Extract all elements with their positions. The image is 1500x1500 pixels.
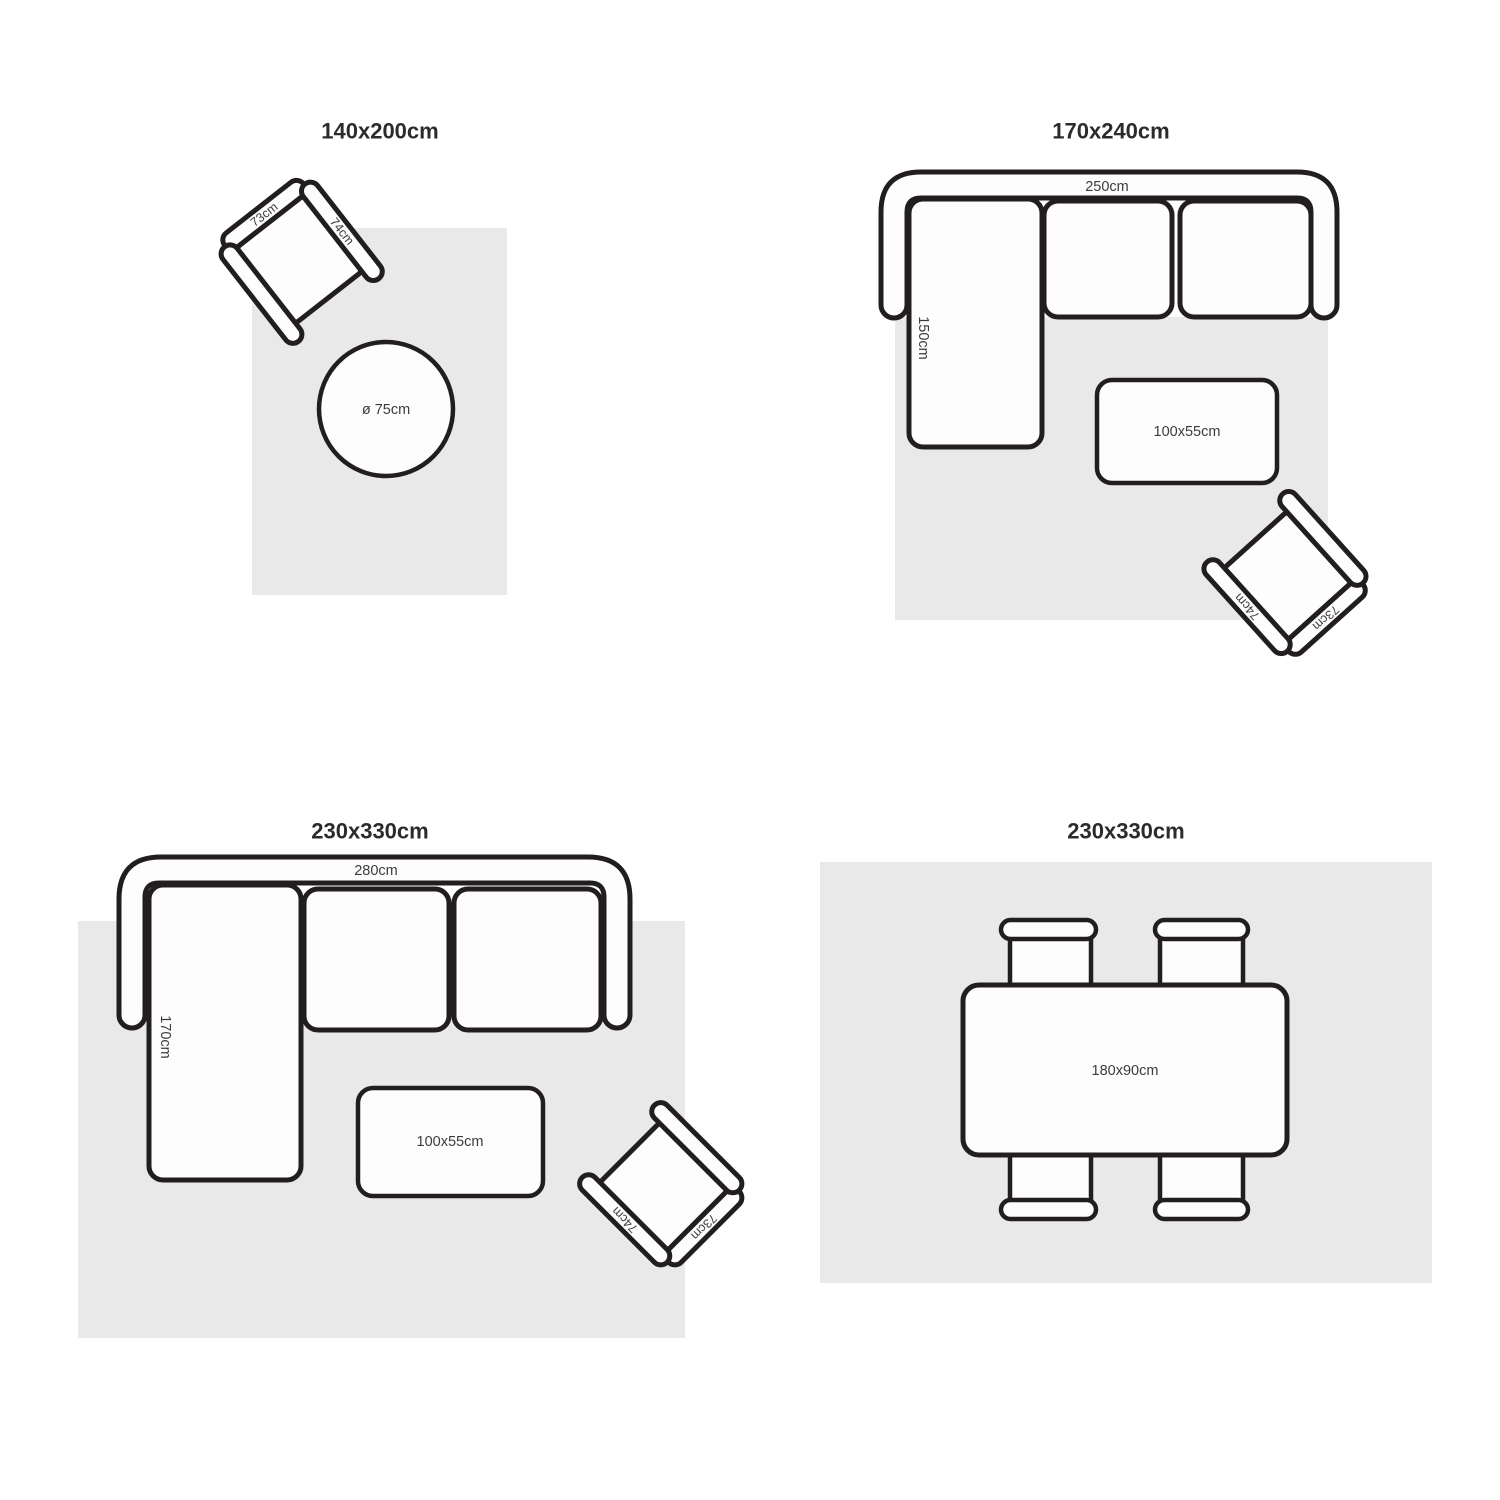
sofa-cushion [454,889,601,1030]
dining-chair-backrest [1155,1200,1248,1219]
sofa-cushion [1180,201,1311,317]
diagram-rug-230x330-dining: 230x330cm 180x90cm [750,750,1500,1500]
sofa-width-label: 280cm [354,863,398,879]
diagram-rug-230x330-sofa: 230x330cm 280cm 170cm 100x55cm 73cm 74cm [0,750,750,1500]
coffee-table-label: 100x55cm [1154,424,1221,440]
dining-chair-backrest [1001,920,1096,939]
diagram-title: 230x330cm [311,819,428,844]
sofa-cushion [304,889,449,1030]
diagram-title: 140x200cm [321,119,438,144]
diagram-rug-140x200: 140x200cm ø 75cm 73cm 74cm [0,0,750,750]
coffee-table-label: 100x55cm [417,1134,484,1150]
dining-chair-backrest [1155,920,1248,939]
diagram-title: 170x240cm [1052,119,1169,144]
rug-size-guide: 140x200cm ø 75cm 73cm 74cm 170x240cm 250… [0,0,1500,1500]
sofa-width-label: 250cm [1085,179,1129,195]
round-side-table-label: ø 75cm [362,402,410,418]
dining-chair-backrest [1001,1200,1096,1219]
diagram-title: 230x330cm [1067,819,1184,844]
diagram-rug-170x240: 170x240cm 250cm 150cm 100x55cm 73cm 74cm [750,0,1500,750]
sofa-depth-label: 150cm [915,316,931,360]
dining-table-label: 180x90cm [1092,1063,1159,1079]
sofa-depth-label: 170cm [157,1015,173,1059]
sofa-cushion [1044,201,1172,317]
